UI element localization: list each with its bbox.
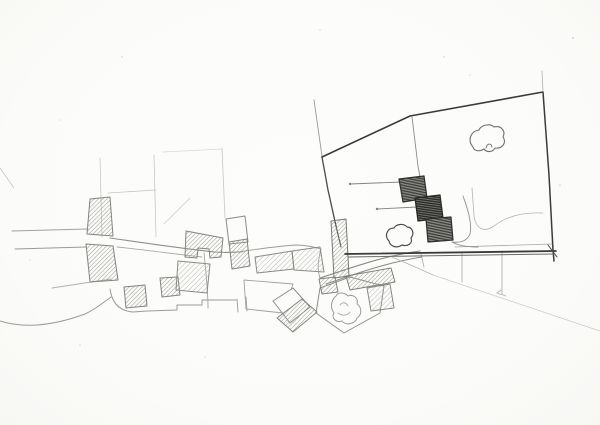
tree-village-inner-2 xyxy=(338,312,350,315)
parcel-step-boundary xyxy=(147,300,236,311)
road-west-upper xyxy=(12,229,88,231)
site-leader-line-2 xyxy=(377,207,417,209)
slope-tick-arrow xyxy=(497,290,506,296)
site-leader-line-1 xyxy=(350,182,401,184)
proposed-building-3 xyxy=(426,217,453,242)
paper-speck-7 xyxy=(79,344,81,346)
site-path-curve xyxy=(452,196,478,247)
site-internal-line xyxy=(412,117,420,177)
paper-speck-10 xyxy=(29,259,31,261)
site-leader-dot-2 xyxy=(376,208,378,210)
tree-site-inner-mark xyxy=(486,144,492,148)
village-building-5 xyxy=(176,261,210,293)
site-boundary-bottom xyxy=(345,251,556,254)
village-building-10 xyxy=(292,247,324,272)
sketch-sheet: Hand-drawn pencil site plan sketch: a vi… xyxy=(0,0,600,425)
paper-speck-5 xyxy=(59,119,61,121)
shapes-layer xyxy=(0,29,600,358)
construction-line-top xyxy=(163,149,222,152)
tree-village xyxy=(332,293,361,324)
village-building-t-leg xyxy=(367,284,394,311)
construction-line-vertical-3 xyxy=(222,148,225,218)
village-building-1 xyxy=(87,197,113,236)
construction-line-horizontal xyxy=(108,190,156,193)
paper-speck-6 xyxy=(559,184,561,186)
site-boundary-right xyxy=(543,92,554,261)
site-boundary-bottom-inner xyxy=(348,254,554,257)
site-path-right xyxy=(472,188,543,229)
village-building-8 xyxy=(229,239,250,269)
site-plan-sketch xyxy=(0,0,600,425)
site-boundary-top xyxy=(322,92,543,157)
paper-speck-2 xyxy=(443,56,445,58)
village-building-2 xyxy=(86,244,118,282)
margin-line-left xyxy=(0,168,14,188)
boundary-tick-1 xyxy=(237,299,238,312)
proposed-building-2 xyxy=(415,195,443,221)
construction-line-vertical-2 xyxy=(154,155,156,237)
village-building-15 xyxy=(319,277,338,294)
paper-speck-3 xyxy=(319,29,321,31)
slope-line-southeast xyxy=(433,275,600,331)
site-building-edge-strip xyxy=(331,219,349,278)
tree-village-inner-1 xyxy=(340,303,348,306)
site-boundary-left-upper xyxy=(322,157,336,226)
terrain-wavy-line xyxy=(0,297,111,325)
paper-speck-8 xyxy=(204,356,206,358)
road-west-lower xyxy=(15,247,86,249)
construction-line-diagonal xyxy=(164,198,190,224)
paper-speck-4 xyxy=(121,56,123,58)
slope-curve-below-site xyxy=(392,257,433,275)
site-leader-dot-1 xyxy=(349,183,351,185)
tree-site xyxy=(470,125,504,152)
bush-site xyxy=(387,224,413,246)
village-building-3 xyxy=(124,285,147,308)
paper-speck-1 xyxy=(572,37,574,39)
paper-speck-9 xyxy=(469,74,471,76)
site-boundary-overshoot-topright xyxy=(542,71,543,92)
village-building-9 xyxy=(255,251,294,273)
site-boundary-overshoot-topleft xyxy=(314,100,322,156)
